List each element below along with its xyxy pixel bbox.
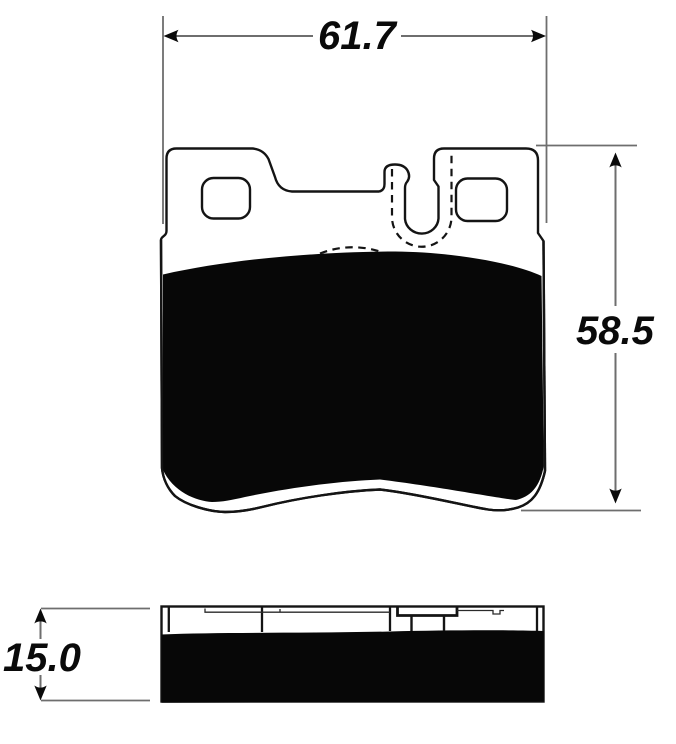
svg-text:61.7: 61.7: [318, 14, 398, 58]
svg-text:58.5: 58.5: [576, 309, 655, 353]
svg-text:15.0: 15.0: [3, 636, 81, 680]
